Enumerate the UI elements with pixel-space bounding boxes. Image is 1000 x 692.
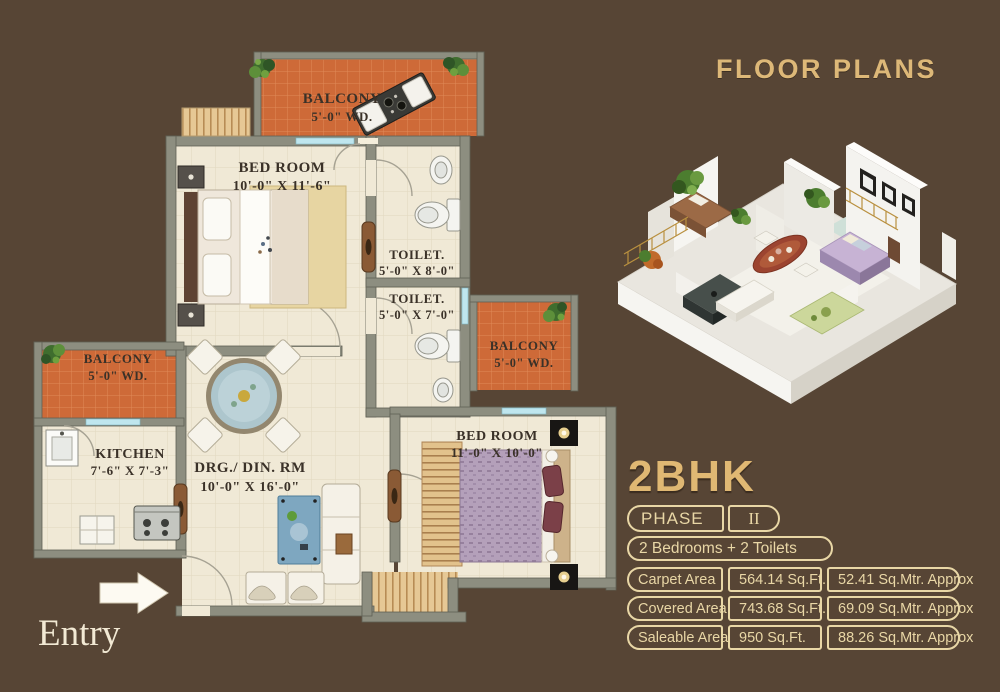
bedroom2-dim: 11'-0" X 10'-0"	[451, 445, 543, 460]
side-table	[336, 534, 352, 554]
floor-plan-2d: BALCONY 5'-0" WD. BED ROOM 10'-0" X 11'-…	[0, 0, 640, 692]
area-sqmtr: 88.26 Sq.Mtr. Approx	[827, 625, 960, 650]
window	[86, 419, 140, 425]
window	[502, 408, 546, 414]
page-title: FLOOR PLANS	[716, 54, 986, 85]
toilet1-label: TOILET.	[389, 247, 444, 262]
area-sqft: 743.68 Sq.Ft.	[728, 596, 822, 621]
balcony-right-label: BALCONY	[490, 338, 559, 353]
pillow	[542, 465, 564, 497]
area-row-covered: Covered Area 743.68 Sq.Ft. 69.09 Sq.Mtr.…	[627, 596, 960, 621]
floor-plan-3d-render	[588, 104, 1000, 434]
entry-marker: Entry	[38, 573, 168, 654]
bed-headboard	[184, 192, 198, 302]
area-sqft: 950 Sq.Ft.	[728, 625, 822, 650]
area-sqmtr: 52.41 Sq.Mtr. Approx	[827, 567, 960, 592]
bed-sheet	[240, 190, 270, 304]
area-label: Saleable Area	[627, 625, 723, 650]
bedroom1-label: BED ROOM	[239, 160, 326, 176]
config-pill: 2 Bedrooms + 2 Toilets	[627, 536, 833, 561]
window	[462, 288, 468, 324]
bedroom2-rug	[422, 442, 462, 566]
area-sqft: 564.14 Sq.Ft.	[728, 567, 822, 592]
passage-wood-floor	[372, 572, 458, 614]
balcony-door-gap	[358, 138, 378, 144]
toilet1-door-gap	[366, 160, 376, 196]
area-label: Carpet Area	[627, 567, 723, 592]
drg-din-label: DRG./ DIN. RM	[194, 460, 306, 476]
pillow	[203, 254, 231, 296]
phase-value-box: II	[728, 505, 780, 532]
phase-label-box: PHASE	[627, 505, 724, 532]
pillow	[542, 501, 563, 533]
window	[296, 138, 354, 144]
entry-label: Entry	[38, 613, 121, 654]
area-label: Covered Area	[627, 596, 723, 621]
stove	[134, 506, 180, 540]
pillow	[203, 198, 231, 240]
area-row-saleable: Saleable Area 950 Sq.Ft. 88.26 Sq.Mtr. A…	[627, 625, 960, 650]
kitchen-label: KITCHEN	[95, 447, 165, 462]
entry-arrow-icon	[100, 573, 168, 613]
balcony-top-dim: 5'-0" WD.	[311, 109, 372, 124]
toilet2-label: TOILET.	[389, 291, 444, 306]
balcony-left-label: BALCONY	[84, 351, 153, 366]
bed-blanket	[272, 190, 308, 304]
toilet1-dim: 5'-0" X 8'-0"	[379, 264, 455, 278]
balcony-right-dim: 5'-0" WD.	[494, 356, 553, 370]
balcony-left-dim: 5'-0" WD.	[88, 369, 147, 383]
bedroom2-label: BED ROOM	[456, 429, 537, 444]
balcony-top-label: BALCONY	[303, 91, 382, 107]
kitchen-dim: 7'-6" X 7'-3"	[91, 463, 170, 478]
ledge-hatch	[182, 108, 250, 136]
area-sqmtr: 69.09 Sq.Mtr. Approx	[827, 596, 960, 621]
toilet2-door-gap	[366, 298, 376, 334]
toilet2-dim: 5'-0" X 7'-0"	[379, 308, 455, 322]
entry-door-gap	[182, 606, 210, 616]
bed-purple	[460, 450, 550, 562]
area-row-carpet: Carpet Area 564.14 Sq.Ft. 52.41 Sq.Mtr. …	[627, 567, 960, 592]
unit-type-heading: 2BHK	[628, 452, 756, 502]
bedroom1-dim: 10'-0" X 11'-6"	[233, 179, 332, 194]
drg-din-dim: 10'-0" X 16'-0"	[200, 480, 299, 495]
